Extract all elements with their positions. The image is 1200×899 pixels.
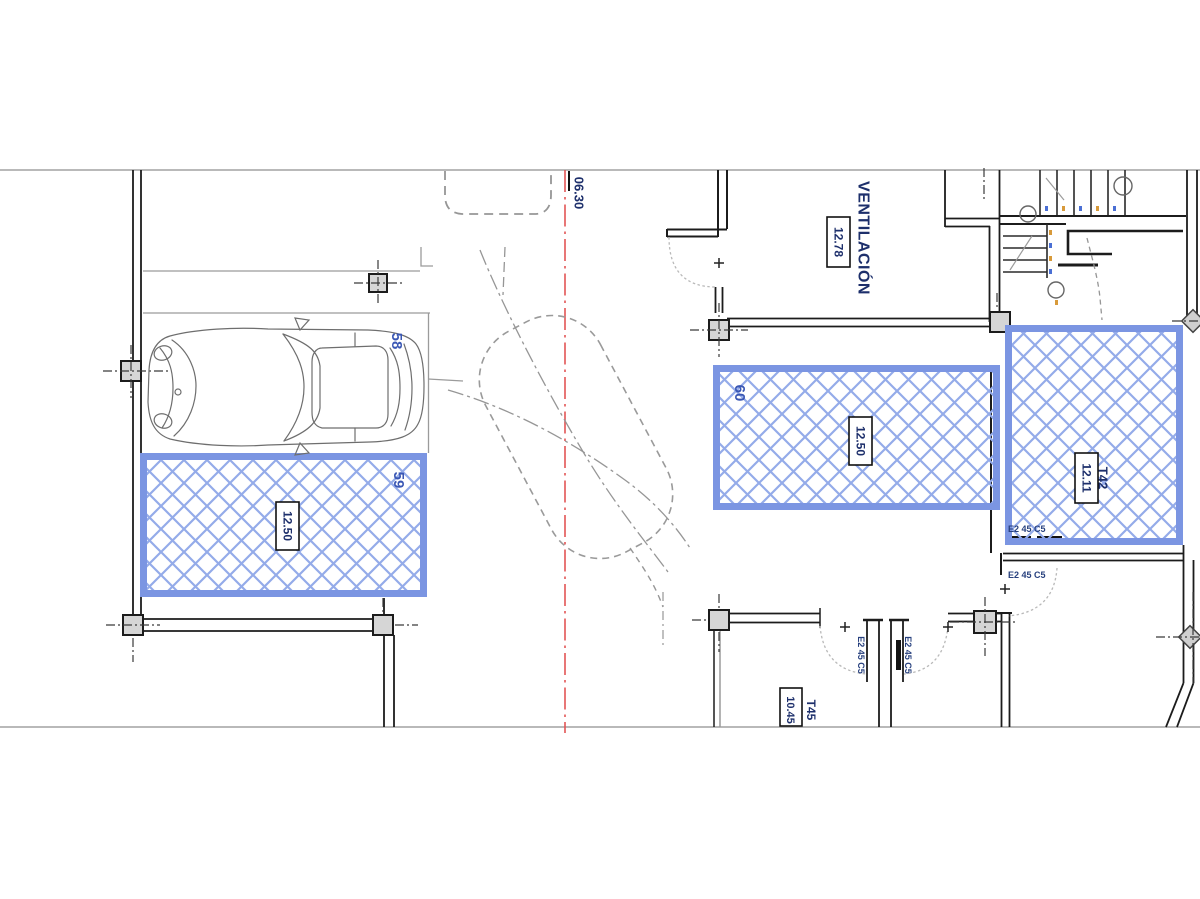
ramp-centerline <box>565 170 569 733</box>
column <box>106 615 160 662</box>
trastero-t45-area-box: 10.45 <box>780 688 802 726</box>
space-59-number: 59 <box>390 472 407 489</box>
door-leaf-mark <box>896 640 901 670</box>
column <box>354 260 402 306</box>
column <box>692 594 729 652</box>
space-60-number: 60 <box>731 385 748 402</box>
trastero-t45-area-value: 10.45 <box>784 696 796 724</box>
space-59-area-box: 12.50 <box>276 502 299 550</box>
door-spec-t42-top: E2 45 C5 <box>1008 524 1046 534</box>
trastero-t42-area-value: 12.11 <box>1079 463 1093 493</box>
column <box>950 597 1018 656</box>
ventilation-area-box: 12.78 <box>827 217 850 267</box>
column <box>690 303 748 357</box>
door-spec-lobby-left: E2 45 C5 <box>856 636 866 674</box>
floor-plan-drawing: 06.30 VENTILACIÓN 12.78 58 59 12.50 60 1… <box>0 0 1200 899</box>
parking-divider-lines <box>143 247 463 453</box>
column <box>373 598 418 635</box>
door-spec-lobby-right: E2 45 C5 <box>903 636 913 674</box>
space-59-area-value: 12.50 <box>280 511 294 541</box>
ramp-width-label: 06.30 <box>571 177 586 210</box>
trastero-t45-code: T45 <box>804 700 818 721</box>
floor-plan-page: 06.30 VENTILACIÓN 12.78 58 59 12.50 60 1… <box>0 0 1200 899</box>
storage-room-t42-highlight[interactable] <box>1009 329 1180 542</box>
car-illustration <box>148 318 424 455</box>
turning-car-template-dashed <box>460 296 692 578</box>
door-spec-t42-bottom: E2 45 C5 <box>1008 570 1046 580</box>
staircase <box>1000 170 1186 320</box>
column <box>103 345 168 398</box>
space-60-area-box: 12.50 <box>849 417 872 465</box>
ventilation-area-value: 12.78 <box>831 227 845 257</box>
ventilation-room-label: VENTILACIÓN <box>854 181 873 295</box>
space-60-area-value: 12.50 <box>853 426 867 456</box>
trastero-t42-area-box: 12.11 <box>1075 453 1098 503</box>
space-58-number: 58 <box>388 333 405 350</box>
stair-step-number-marks <box>1045 206 1116 305</box>
vehicle-maneuver-paths <box>445 171 692 645</box>
